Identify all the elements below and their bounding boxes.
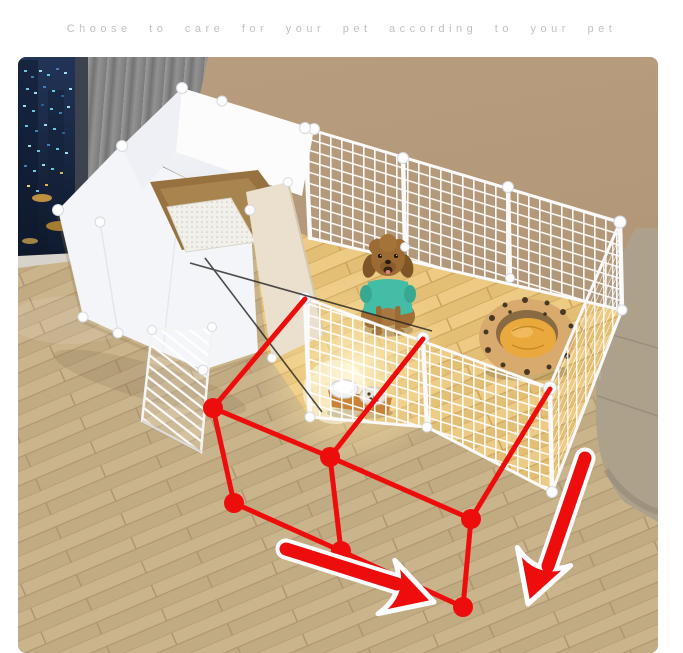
dog-tongue	[386, 270, 391, 274]
bed-cushion	[500, 318, 556, 358]
dog-nose	[385, 260, 391, 264]
room-photo	[0, 0, 683, 653]
